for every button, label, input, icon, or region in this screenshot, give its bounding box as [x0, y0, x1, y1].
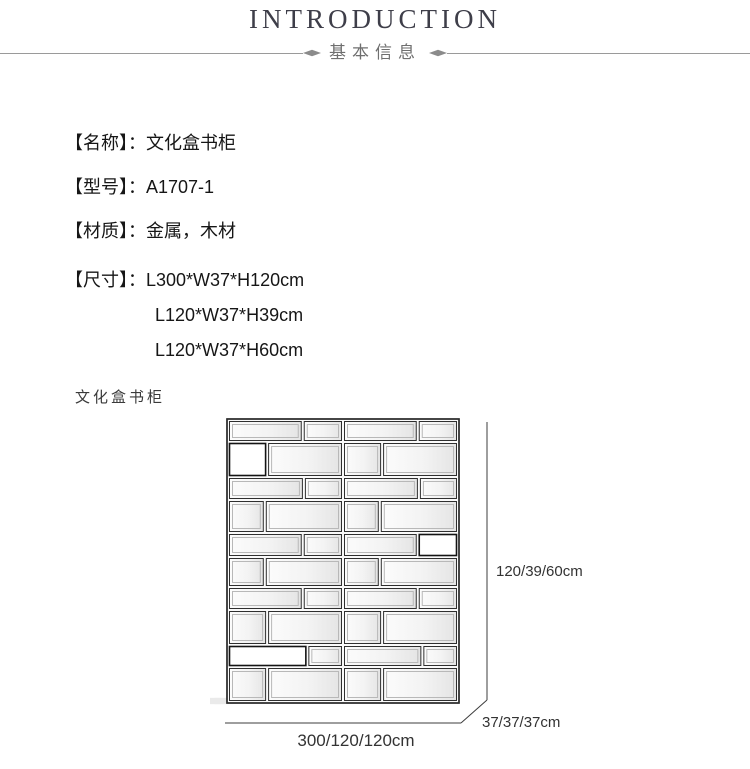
spec-size-extra-2: L120*W37*H60cm — [155, 338, 303, 362]
dimension-label-height: 120/39/60cm — [496, 563, 583, 580]
shelf-compartment — [345, 612, 381, 644]
shelf-compartment — [345, 444, 381, 476]
section-subtitle: 基本信息 — [329, 42, 421, 64]
shelf-compartment — [269, 612, 342, 644]
spec-label: 【材质】 — [65, 221, 128, 241]
spec-value: 金属，木材 — [146, 221, 236, 241]
dimension-label-depth: 37/37/37cm — [482, 714, 560, 731]
spec-label: 【尺寸】 — [65, 270, 128, 290]
spec-colon: ： — [128, 133, 146, 153]
subtitle-row: 基本信息 — [0, 42, 750, 64]
spec-label: 【名称】 — [65, 133, 128, 153]
shelf-compartment — [266, 559, 341, 586]
product-drawing: 120/39/60cm 37/37/37cm 300/120/120cm — [210, 405, 600, 765]
shelf-compartment — [384, 444, 457, 476]
shelf-compartment — [384, 669, 457, 701]
drawing-caption: 文化盒书柜 — [75, 386, 165, 407]
shelf-compartment — [384, 612, 457, 644]
shelf-compartment-open — [230, 444, 266, 476]
shelf-compartment-open — [419, 535, 456, 556]
product-intro-page: INTRODUCTION 基本信息 【名称】：文化盒书柜 【型号】：A1707-… — [0, 0, 750, 769]
spec-value: A1707-1 — [146, 177, 214, 197]
spec-colon: ： — [128, 177, 146, 197]
shelf-compartment — [381, 559, 456, 586]
spec-size-extra-1: L120*W37*H39cm — [155, 303, 303, 327]
shelf-compartment-open — [230, 647, 306, 666]
shelf-compartment — [230, 502, 264, 532]
dimension-label-width: 300/120/120cm — [297, 731, 414, 750]
left-rule — [0, 53, 303, 54]
shelf-compartment — [345, 502, 379, 532]
shelf-compartment — [345, 669, 381, 701]
right-rule — [447, 53, 750, 54]
shelf-compartment — [345, 559, 379, 586]
spec-value: 文化盒书柜 — [146, 133, 236, 153]
spec-row-model: 【型号】：A1707-1 — [65, 175, 214, 199]
spec-row-size: 【尺寸】：L300*W37*H120cm — [65, 268, 304, 292]
shelf-compartment — [381, 502, 456, 532]
shelf-compartment — [266, 502, 341, 532]
diamond-arrow-left-icon — [429, 49, 447, 57]
diamond-arrow-right-icon — [303, 49, 321, 57]
shelf-compartment — [269, 444, 342, 476]
shelf-compartment — [230, 612, 266, 644]
spec-label: 【型号】 — [65, 177, 128, 197]
shelf-compartment — [269, 669, 342, 701]
shelf-compartment — [230, 559, 264, 586]
spec-row-name: 【名称】：文化盒书柜 — [65, 131, 236, 155]
spec-row-material: 【材质】：金属，木材 — [65, 219, 236, 243]
shelf-compartment — [230, 669, 266, 701]
spec-colon: ： — [128, 221, 146, 241]
spec-value: L300*W37*H120cm — [146, 270, 304, 290]
bookshelf-drawing — [227, 419, 459, 703]
page-title: INTRODUCTION — [0, 4, 750, 35]
spec-colon: ： — [128, 270, 146, 290]
